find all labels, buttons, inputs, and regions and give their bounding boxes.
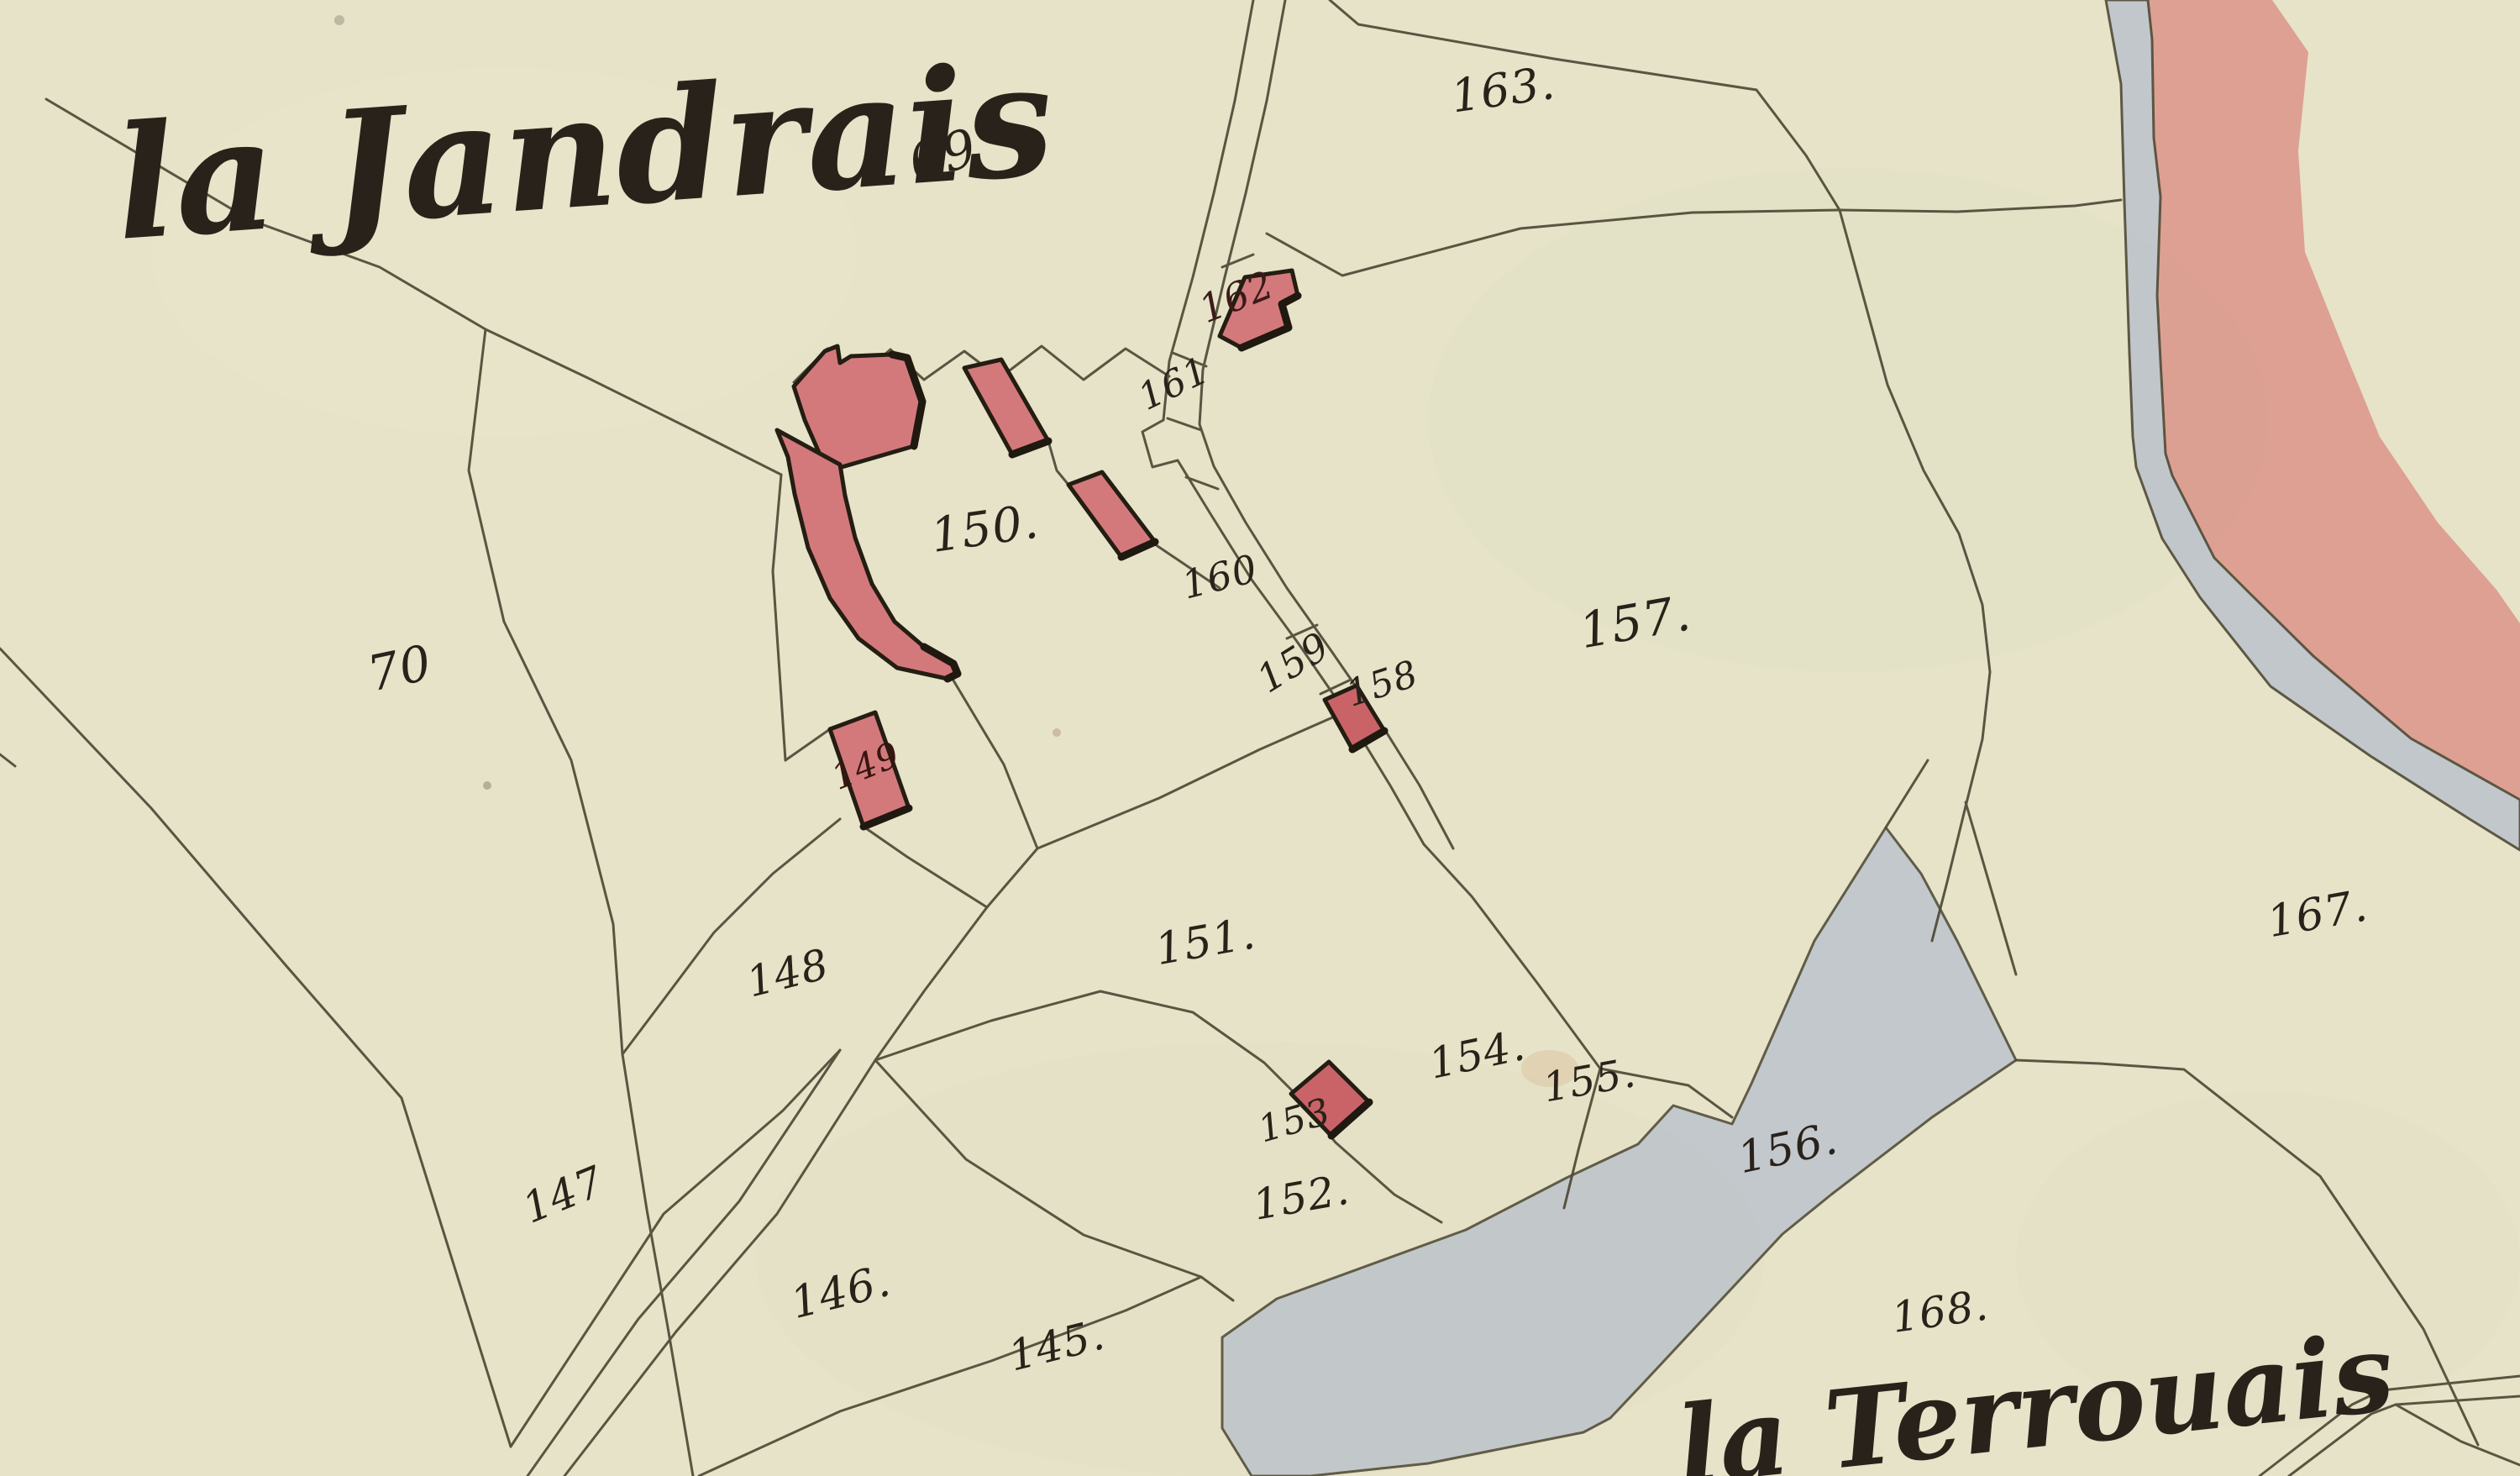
map-canvas: 69 70 163. 162 161 150. 160 157. 159 158…	[0, 0, 2520, 1476]
cadastral-map: 69 70 163. 162 161 150. 160 157. 159 158…	[0, 0, 2520, 1476]
